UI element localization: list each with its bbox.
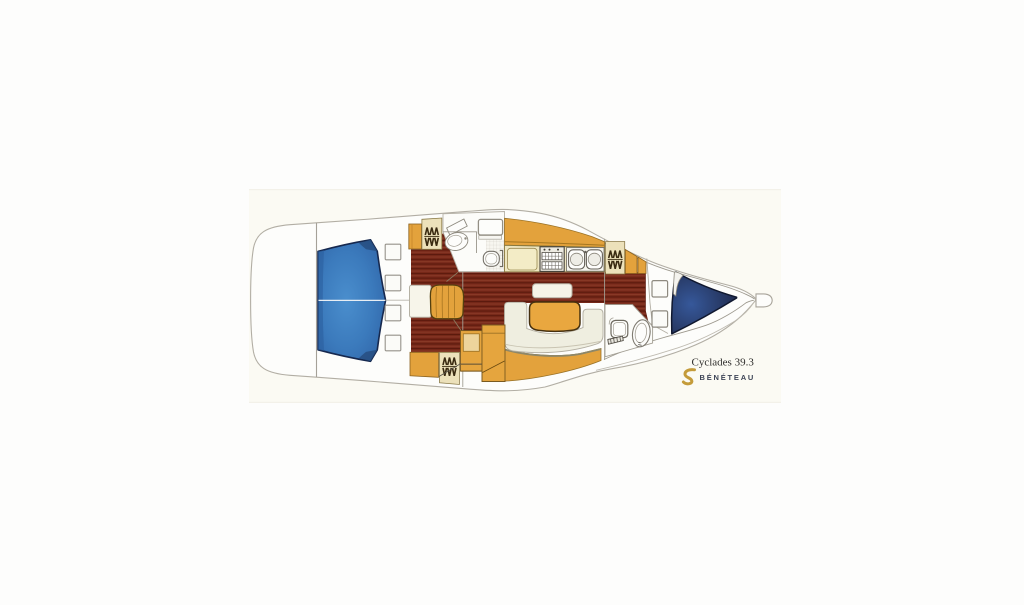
svg-text:Cyclades 39.3: Cyclades 39.3 [692,357,755,369]
svg-text:BÉNÉTEAU: BÉNÉTEAU [700,373,756,382]
